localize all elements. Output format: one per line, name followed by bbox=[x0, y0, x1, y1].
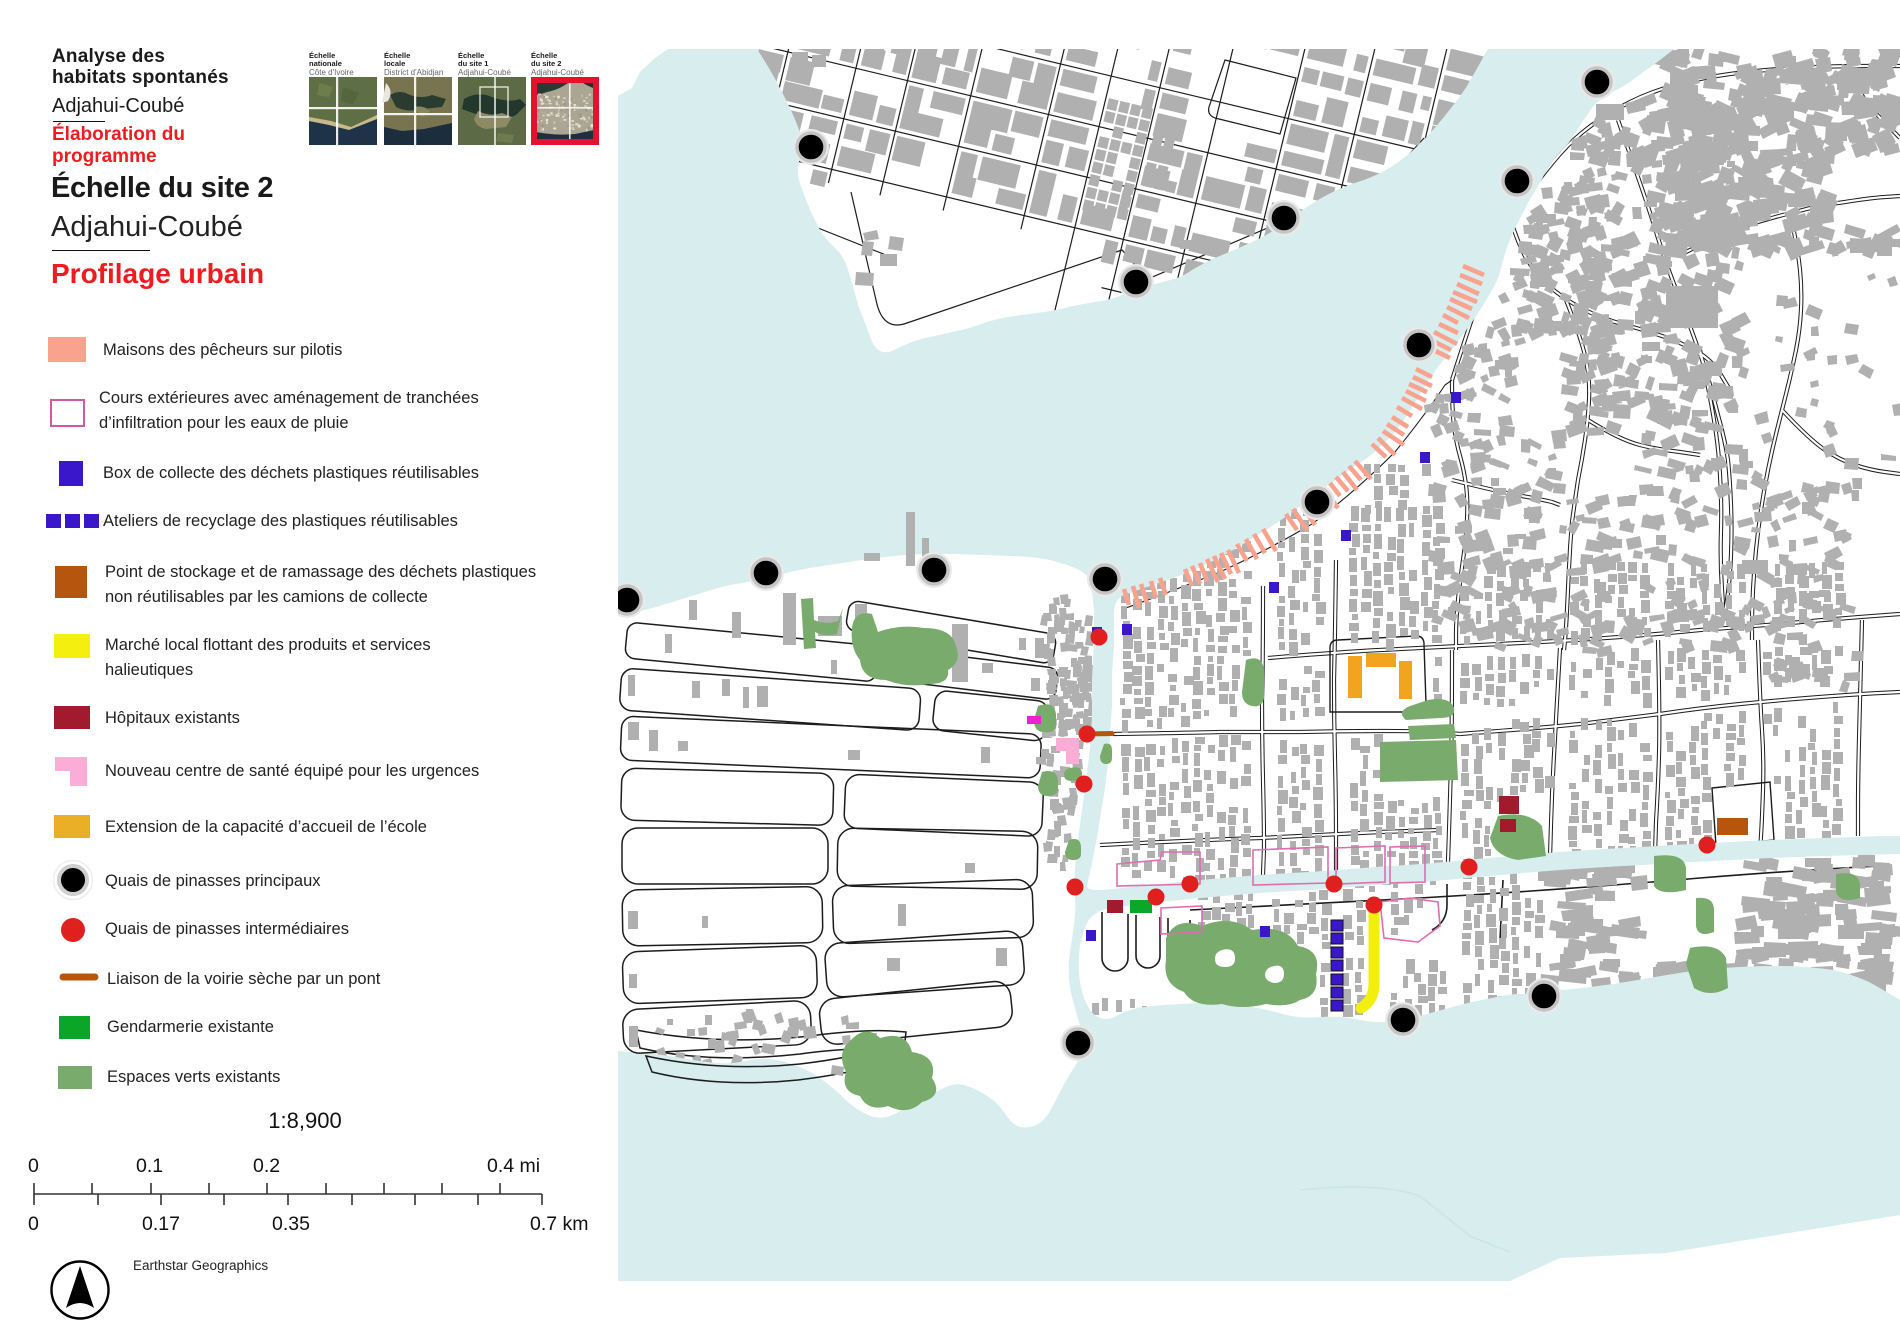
svg-text:0.4 mi: 0.4 mi bbox=[487, 1155, 540, 1177]
svg-text:0.2: 0.2 bbox=[253, 1155, 280, 1177]
svg-text:0.1: 0.1 bbox=[136, 1155, 163, 1177]
svg-text:0.17: 0.17 bbox=[142, 1213, 180, 1235]
svg-text:0.35: 0.35 bbox=[272, 1213, 310, 1235]
svg-text:0.7 km: 0.7 km bbox=[530, 1213, 589, 1235]
svg-text:0: 0 bbox=[28, 1213, 39, 1235]
svg-text:0: 0 bbox=[28, 1155, 39, 1177]
